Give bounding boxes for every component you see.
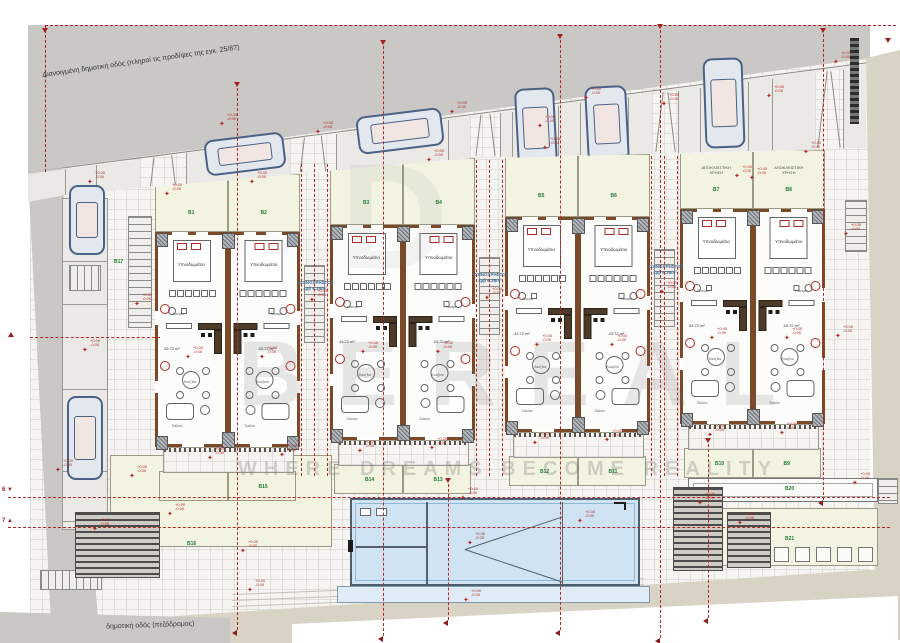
level-marker: ✦+0.00-0.00 <box>134 294 140 310</box>
level-marker: ✦+0.00-0.00 <box>484 288 490 304</box>
garden-label: B2 <box>261 211 267 216</box>
stool <box>733 310 737 314</box>
level-marker: ✦+0.00-0.00 <box>537 116 543 132</box>
pool-door <box>348 540 353 552</box>
kitchen-counter <box>214 330 222 354</box>
wedge-line <box>830 71 840 148</box>
level-marker: ✦+0.00-0.00 <box>843 224 849 240</box>
wardrobe <box>177 290 184 297</box>
walkway-dashed-line <box>651 156 652 476</box>
bath-label: Λουτρό <box>697 290 709 294</box>
stall-divider <box>336 134 337 170</box>
front-garden-cell: B7ΑΠΟΚΛΕΙΣΤΙΚΗΧΡΗΣΗ <box>680 150 753 209</box>
section-arrow <box>8 332 14 337</box>
pool-partition <box>356 546 426 548</box>
level-marker: ✦+0.00-0.00 <box>315 122 321 138</box>
paving-slab <box>816 547 831 562</box>
wardrobe <box>694 267 701 274</box>
level-marker: ✦+0.00-0.00 <box>435 342 441 358</box>
front-garden-cell: B6 <box>578 154 651 217</box>
boundary-top <box>45 25 896 26</box>
wardrobe <box>780 267 787 274</box>
level-marker: ✦+0.00-0.00 <box>784 328 790 344</box>
door-swing <box>810 281 820 291</box>
bath-label: Λουτρό <box>271 313 283 317</box>
wardrobe <box>764 267 771 274</box>
counter <box>613 308 639 314</box>
level-marker: ✦+0.00-0.00 <box>357 441 363 457</box>
wardrobe <box>263 290 270 297</box>
level-marker: ✦+0.00-0.00 <box>583 88 589 104</box>
pillow <box>177 243 187 250</box>
wardrobe <box>271 290 278 297</box>
counter <box>516 308 542 314</box>
level-marker: ✦+0.00-0.00 <box>249 172 255 188</box>
pump-unit <box>376 508 387 516</box>
stall-divider <box>512 112 513 157</box>
garden-label: B7 <box>713 188 719 193</box>
garden-label: B15 <box>259 485 268 490</box>
bath-label: Λουτρό <box>172 313 184 317</box>
boundary-arrow-right <box>885 38 891 43</box>
level-marker: ✦+0.00-0.00 <box>852 473 858 489</box>
front-garden-cell: B2 <box>228 174 301 232</box>
section-arrow <box>232 630 237 636</box>
exterior-stair <box>128 216 152 328</box>
pillow <box>604 228 614 235</box>
pillow <box>191 243 201 250</box>
section-arrow <box>445 478 451 483</box>
dwelling-unit: ΥπνοδωμάτιοΛουτρό43.72 m²ΚουζίναΣαλόνι <box>158 235 225 444</box>
stall-divider <box>186 153 187 184</box>
wardrobe <box>597 275 604 282</box>
bedroom-label: Υπνοδωμάτιο <box>683 240 750 245</box>
chair <box>176 367 184 375</box>
level-marker: ✦+0.00-0.00 <box>803 142 809 158</box>
level-marker: ✦+0.00-0.00 <box>87 172 93 188</box>
section-line-horizontal <box>8 527 890 528</box>
car-icon <box>702 57 745 148</box>
wardrobe <box>734 267 741 274</box>
wardrobe <box>629 275 636 282</box>
stall-divider <box>558 106 559 156</box>
walkway-dashed-line <box>476 160 477 476</box>
walkway-dashed-line <box>677 156 678 476</box>
boundary-left <box>45 25 46 172</box>
walkway-wedge <box>470 112 500 158</box>
kitchen-counter <box>583 308 607 315</box>
wardrobe <box>702 267 709 274</box>
level-marker: ✦+0.00-0.00 <box>737 513 743 529</box>
car-cabin <box>76 202 98 239</box>
level-marker: ✦+0.00-0.00 <box>542 138 548 154</box>
wardrobe <box>726 267 733 274</box>
wedge-line <box>475 114 481 156</box>
section-line <box>823 34 824 500</box>
level-marker: ✦+0.00-0.00 <box>92 519 98 535</box>
paving-slab <box>795 547 810 562</box>
stall-divider <box>63 261 107 262</box>
armchair <box>200 405 210 415</box>
level-marker: ✦+0.00-0.00 <box>734 166 740 182</box>
section-marker: 6 ▼ <box>2 487 13 493</box>
stall-divider <box>580 103 581 155</box>
level-marker: ✦+0.00-0.00 <box>129 466 135 482</box>
wardrobe <box>169 290 176 297</box>
level-marker: ✦+0.00-0.00 <box>534 335 540 351</box>
level-marker: ✦+0.00-0.00 <box>167 504 173 520</box>
pillow <box>716 220 726 227</box>
section-arrow <box>655 638 660 643</box>
wardrobe <box>543 275 550 282</box>
chair <box>176 391 184 399</box>
level-marker: ✦+0.00-0.00 <box>449 102 455 118</box>
stall-divider <box>63 304 107 305</box>
exterior-steps <box>878 478 898 504</box>
section-arrow <box>557 34 563 39</box>
garden-label: B20 <box>785 487 794 492</box>
swimming-pool <box>350 498 640 586</box>
kitchen-counter <box>198 323 222 330</box>
kitchen-counter <box>723 300 747 307</box>
paving-slab <box>774 547 789 562</box>
dark-fence <box>850 38 859 124</box>
pump-unit <box>360 508 371 516</box>
pillow <box>779 220 789 227</box>
level-marker: ✦+0.00-0.00 <box>779 423 785 439</box>
bedroom-label: Υπνοδωμάτιο <box>231 263 298 268</box>
watermark-ghost-letter: D <box>340 130 448 303</box>
section-arrow <box>820 28 826 33</box>
pillow <box>541 228 551 235</box>
walkway-dashed-line <box>314 164 315 476</box>
level-marker: ✦+0.00-0.00 <box>259 347 265 363</box>
car-icon <box>69 185 105 255</box>
stall-divider <box>843 70 844 149</box>
level-marker: ✦+0.00-0.00 <box>833 52 839 68</box>
level-marker: ✦+0.00-0.00 <box>240 541 246 557</box>
stool <box>726 310 730 314</box>
section-arrow <box>378 636 383 642</box>
section-arrow <box>818 500 823 506</box>
level-marker: ✦+0.00-0.00 <box>835 326 841 342</box>
stall-divider <box>63 389 107 390</box>
garden-label: B6 <box>611 194 617 199</box>
watermark-brand: BEREAL <box>238 322 808 427</box>
wardrobe <box>551 275 558 282</box>
level-marker: ✦+0.00-0.00 <box>609 335 615 351</box>
parking-steps <box>69 265 101 291</box>
walkway-wedge <box>290 133 336 174</box>
section-marker: 7 ▲ <box>2 518 13 524</box>
pergola-ticks <box>164 448 291 452</box>
section-line-horizontal <box>8 497 890 498</box>
living-label: Σαλόνι <box>172 425 182 429</box>
stool <box>768 310 772 314</box>
pool-step <box>624 502 626 510</box>
walkway-wedge <box>815 69 843 150</box>
watermark-tagline: WHERE DREAMS BECOME REALITY <box>238 458 778 481</box>
sofa <box>166 403 194 420</box>
bath-label: Λουτρό <box>522 298 534 302</box>
boundary-arrow <box>42 28 48 33</box>
wardrobe <box>804 267 811 274</box>
counter <box>166 323 192 329</box>
paving-slab <box>858 547 873 562</box>
front-garden-cell: B5 <box>505 154 578 217</box>
bedroom-label: Υπνοδωμάτιο <box>508 248 575 253</box>
site-plan-drawing: Διανοιγμένη δημοτική οδός (πληροί τις πρ… <box>0 0 900 643</box>
pillow <box>527 228 537 235</box>
wardrobe <box>247 290 254 297</box>
walkway-dashed-line <box>327 164 328 476</box>
door-swing <box>810 338 820 348</box>
garden-label: B21 <box>785 537 794 542</box>
section-arrow <box>703 618 708 624</box>
wardrobe <box>255 290 262 297</box>
level-marker: ✦+0.00-0.00 <box>247 580 253 596</box>
garden-label: B9 <box>784 462 790 467</box>
door-swing <box>685 281 695 291</box>
stool <box>201 333 205 337</box>
car-cabin <box>711 78 738 127</box>
section-arrow <box>380 40 386 45</box>
level-marker: ✦+0.00-0.00 <box>309 290 315 306</box>
wardrobe <box>239 290 246 297</box>
level-marker: ✦+0.00-0.00 <box>460 488 466 504</box>
car-cabin <box>74 416 96 461</box>
wardrobe <box>527 275 534 282</box>
door-swing <box>285 304 295 314</box>
wardrobe <box>185 290 192 297</box>
level-marker: ✦+0.00-0.00 <box>577 511 583 527</box>
pillow <box>702 220 712 227</box>
garden-label: B1 <box>188 211 194 216</box>
pillow <box>793 220 803 227</box>
kitchen-label: Κουζίνα <box>184 381 196 385</box>
walkway-dashed-line <box>502 160 503 476</box>
level-marker: ✦+0.00-0.00 <box>604 430 610 446</box>
car-cabin <box>217 142 272 166</box>
pergola <box>75 512 160 578</box>
pillow <box>254 243 264 250</box>
level-marker: ✦+0.00-0.00 <box>429 438 435 454</box>
level-marker: ✦+0.00-0.00 <box>279 445 285 461</box>
wedge-line <box>489 114 495 156</box>
door-swing <box>460 297 470 307</box>
stall-divider <box>748 82 749 152</box>
chair <box>202 367 210 375</box>
wardrobe <box>772 267 779 274</box>
wedge-line <box>150 154 155 186</box>
level-marker: ✦+0.00-0.00 <box>426 150 432 166</box>
wardrobe <box>279 290 286 297</box>
wardrobe <box>454 283 461 290</box>
section-arrow <box>555 630 560 636</box>
stool <box>775 310 779 314</box>
level-marker: ✦+0.00-0.00 <box>766 86 772 102</box>
walkway-dashed-line <box>301 164 302 476</box>
wardrobe <box>535 275 542 282</box>
garden-label: B8 <box>786 188 792 193</box>
level-marker: ✦+0.00-0.00 <box>360 342 366 358</box>
stool <box>208 333 212 337</box>
level-marker: ✦+0.00-0.00 <box>463 590 469 606</box>
bath-label: Λουτρό <box>796 290 808 294</box>
level-marker: ✦+0.00-0.00 <box>532 433 538 449</box>
level-marker: ✦+0.00-0.00 <box>82 340 88 356</box>
level-marker: ✦+0.00-0.00 <box>164 184 170 200</box>
wardrobe <box>201 290 208 297</box>
bath-label: Λουτρό <box>446 306 458 310</box>
front-garden-cell: B8ΑΠΟΚΛΕΙΣΤΙΚΗΧΡΗΣΗ <box>753 150 826 209</box>
section-arrow <box>657 24 663 29</box>
wardrobe <box>209 290 216 297</box>
walkway-dashed-line <box>664 156 665 476</box>
exclusive-use-note: ΑΠΟΚΛΕΙΣΤΙΚΗΧΡΗΣΗ <box>681 165 752 175</box>
level-marker: ✦+0.00-0.00 <box>697 493 703 509</box>
wardrobe <box>193 290 200 297</box>
level-marker: ✦+0.00-0.00 <box>185 347 191 363</box>
door-swing <box>510 289 520 299</box>
stall-divider <box>65 168 66 195</box>
bedroom-label: Υπνοδωμάτιο <box>158 263 225 268</box>
pool-divider <box>562 502 563 584</box>
pool-wall <box>426 502 428 584</box>
wardrobe <box>613 275 620 282</box>
counter <box>691 300 717 306</box>
front-garden: B5B6 <box>505 154 650 217</box>
level-marker: ✦+0.00-0.00 <box>707 425 713 441</box>
pillow <box>618 228 628 235</box>
counter <box>788 300 814 306</box>
level-marker: ✦+0.00-0.00 <box>219 114 225 130</box>
bath-label: Λουτρό <box>621 298 633 302</box>
bedroom-label: Υπνοδωμάτιο <box>756 240 823 245</box>
wardrobe <box>605 275 612 282</box>
level-marker: ✦+0.00-0.00 <box>659 282 665 298</box>
section-arrow <box>234 82 240 87</box>
level-marker: ✦+0.00-0.00 <box>207 448 213 464</box>
garden-label: B16 <box>187 542 196 547</box>
kitchen-counter <box>758 300 782 307</box>
walkway-dashed-line <box>489 160 490 476</box>
garden-label: B17 <box>114 260 123 265</box>
wardrobe <box>621 275 628 282</box>
bedroom-label: Υπνοδωμάτιο <box>581 248 648 253</box>
unit-area-label: 43.72 m² <box>164 347 180 351</box>
wardrobe <box>796 267 803 274</box>
level-marker: ✦+0.00-0.00 <box>661 94 667 110</box>
car-cabin <box>593 103 622 145</box>
wardrobe <box>710 267 717 274</box>
wardrobe <box>718 267 725 274</box>
door-swing <box>160 361 170 371</box>
door-swing <box>160 304 170 314</box>
garden-label: B5 <box>538 194 544 199</box>
door-swing <box>635 289 645 299</box>
bath-label: Λουτρό <box>347 306 359 310</box>
car-icon <box>584 85 630 163</box>
car-icon <box>514 87 558 169</box>
level-marker: ✦+0.00-0.00 <box>467 533 473 549</box>
wardrobe <box>589 275 596 282</box>
stall-divider <box>772 79 773 151</box>
stall-divider <box>700 88 701 153</box>
stall-divider <box>500 113 501 157</box>
section-line <box>448 484 449 620</box>
section-arrow <box>443 620 448 626</box>
pool-area <box>330 490 660 615</box>
level-marker: ✦+0.00-0.00 <box>55 460 61 476</box>
paving-slab <box>837 547 852 562</box>
chair <box>202 391 210 399</box>
pillow <box>268 243 278 250</box>
level-marker: ✦+0.00-0.00 <box>709 328 715 344</box>
wardrobe <box>788 267 795 274</box>
wardrobe <box>519 275 526 282</box>
wedge-line <box>321 135 327 172</box>
